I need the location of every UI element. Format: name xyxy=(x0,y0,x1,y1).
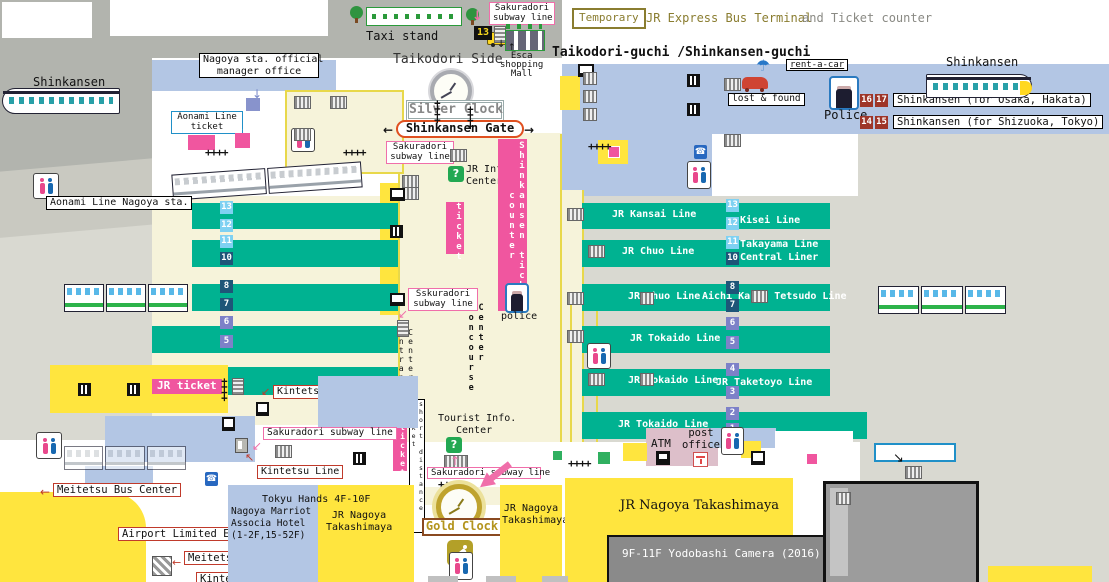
subway-entrance-icon xyxy=(152,556,172,576)
line-label: Kisei Line xyxy=(740,215,800,226)
escalator-icon xyxy=(567,208,584,221)
pink-arrow-down-icon: ↓ xyxy=(472,10,483,23)
kiosk-icon xyxy=(256,402,269,416)
kintetsu-mid-label: Kintetsu Line xyxy=(257,465,343,479)
commuter-train-icon xyxy=(878,286,1006,314)
restroom-icon xyxy=(36,432,62,459)
sakuradori-line1: Sakuradori xyxy=(495,3,549,13)
escalator-icon xyxy=(330,96,347,109)
platform-number: 13 xyxy=(220,201,233,214)
nagoya-station-map: JR Kansai Line Kisei Line JR Chuo Line T… xyxy=(0,0,1109,582)
sakuradori-line1: Sakuradori xyxy=(431,468,485,478)
atm-label: ATM xyxy=(651,438,671,451)
platform-number: 10 xyxy=(220,252,233,265)
ticket-gates-icon: ++++ xyxy=(218,378,231,401)
lost-found-label: lost & found xyxy=(728,93,805,106)
kiosk-icon xyxy=(751,451,765,465)
platform-number: 12 xyxy=(726,217,739,230)
takashimaya-b2: Takashimaya xyxy=(502,515,568,526)
escalator-icon xyxy=(724,134,741,147)
marriott-2: Associa Hotel xyxy=(231,518,305,529)
restroom-icon xyxy=(721,427,744,455)
takashimaya-a2: Takashimaya xyxy=(326,522,392,533)
takashimaya-a1: JR Nagoya xyxy=(332,510,386,521)
restaurant-icon xyxy=(687,103,700,116)
sskuradori-label: Sskuradori subway line xyxy=(408,288,478,311)
aonami-ticket-1: Aonami Line xyxy=(177,112,237,122)
escalator-icon xyxy=(275,445,292,458)
center-concourse-label: Center Concourse xyxy=(470,303,485,431)
escalator-icon xyxy=(450,149,467,162)
arrow-up-icon: ↑ xyxy=(508,44,516,53)
empty-label-box xyxy=(874,443,956,462)
arrow-right-icon: → xyxy=(524,124,534,136)
platform-number: 5 xyxy=(220,335,233,348)
line-label: JR Chuo Line xyxy=(628,291,700,302)
temporary-label: Temporary xyxy=(572,8,646,29)
escalator-icon xyxy=(588,373,605,386)
shinkansen-tokyo-label: Shinkansen (for Shizuoka, Tokyo) xyxy=(893,115,1103,129)
line-label: Central Liner xyxy=(740,252,818,263)
restaurant-icon xyxy=(353,452,366,465)
tree-icon xyxy=(350,6,363,19)
jr-ticket-label: JR ticket xyxy=(152,379,222,394)
pink-square xyxy=(806,453,818,465)
jr-info-2: Center xyxy=(466,176,502,187)
platform-number: 13 xyxy=(726,199,739,212)
shinkansen-train-icon xyxy=(926,74,1032,98)
bus-bay xyxy=(366,7,462,26)
taikodori-guchi-label: Taikodori-guchi /Shinkansen-guchi xyxy=(552,46,810,61)
escalator-icon xyxy=(640,373,654,386)
marriott-label: Nagoya Marriot Associa Hotel (1-2F,15-52… xyxy=(231,506,311,542)
escalator-icon xyxy=(583,90,597,103)
platform-number: 6 xyxy=(726,317,739,330)
gold-clock-label: Gold Clock xyxy=(422,518,502,536)
escalator-icon xyxy=(588,245,605,258)
gray-stub xyxy=(486,576,516,582)
platform-number: 8 xyxy=(726,281,739,294)
tourist-info-2: Center xyxy=(456,425,492,436)
platform-number: 8 xyxy=(220,280,233,293)
escalator-icon xyxy=(724,78,741,91)
escalator-icon xyxy=(397,320,409,337)
jr-express-bus-label: JR Express Bus Terminal xyxy=(646,12,812,26)
meitetsu-bus-label: Meitetsu Bus Center xyxy=(53,483,181,497)
platform-number: 4 xyxy=(726,363,739,376)
esca-label: Esca shopping Mall xyxy=(500,52,543,79)
tourist-info-label: Tourist Info. Center xyxy=(438,413,516,436)
sskuradori-2: subway line xyxy=(413,299,473,309)
train-outline-icon xyxy=(64,446,186,470)
building-block xyxy=(2,2,92,38)
escalator-icon xyxy=(640,292,654,305)
pink-arrow-up-icon: ↑ xyxy=(450,455,460,467)
phone-icon: ☎ xyxy=(694,145,707,159)
ticket-gates-icon: ++++ xyxy=(343,146,366,159)
queue-dots xyxy=(506,24,542,29)
post-office-icon xyxy=(693,452,708,467)
sakuradori-line1: Sakuradori xyxy=(267,427,324,438)
post-office-label: post office xyxy=(682,427,720,451)
platform-number: 12 xyxy=(220,219,233,232)
takashimaya-big-label: JR Nagoya Takashimaya xyxy=(620,499,779,514)
takashimaya-b-block xyxy=(500,485,562,582)
escalator-icon xyxy=(232,378,244,395)
sakuradori-line1: Sakuradori xyxy=(393,142,447,152)
restaurant-icon xyxy=(78,383,91,396)
gray-stub xyxy=(542,576,568,582)
platform-number: 2 xyxy=(726,407,739,420)
restroom-icon xyxy=(587,343,611,369)
platform-number: 3 xyxy=(726,386,739,399)
building-block xyxy=(110,0,328,36)
line-label: JR Tokaido Line xyxy=(630,333,720,344)
sakuradori-label-top: Sakuradori subway line xyxy=(489,2,555,25)
post-2: office xyxy=(682,439,720,451)
queue-dots xyxy=(372,14,456,19)
police-box-icon xyxy=(505,283,529,313)
red-arrow-icon: ← xyxy=(172,557,181,568)
esca-3: Mall xyxy=(511,69,533,79)
restaurant-icon xyxy=(390,225,403,238)
coffee-kiosk-icon xyxy=(222,417,235,431)
sakuradori-label-mid: Sakuradori subway line xyxy=(386,141,454,164)
takashimaya-b1: JR Nagoya xyxy=(504,503,558,514)
tourist-info-1: Tourist Info. xyxy=(438,413,516,424)
sakuradori-line2: subway line xyxy=(390,152,450,162)
manager-office-1: Nagoya sta. official xyxy=(203,54,323,65)
sskuradori-1: Sskuradori xyxy=(416,289,470,299)
red-arrow-left-icon: ← xyxy=(40,486,50,498)
blue-block-sw2 xyxy=(318,376,418,428)
pink-arrow-icon: ↙ xyxy=(398,308,408,320)
line-label: JR Chuo Line xyxy=(622,246,694,257)
line-label: Aichi Kanjo Tetsudo Line xyxy=(702,291,847,302)
platform-number: 7 xyxy=(220,298,233,311)
kiosk-icon xyxy=(390,293,405,306)
track-17-badge: 17 xyxy=(875,94,888,107)
tokyu-hands-label: Tokyu Hands 4F-10F xyxy=(262,494,370,506)
escalator-icon xyxy=(294,128,311,141)
red-arrow-icon: ↙ xyxy=(261,386,270,397)
ticket-office xyxy=(235,133,250,148)
escalator-icon xyxy=(583,72,597,85)
police-label: police xyxy=(501,311,537,323)
atm-icon xyxy=(656,451,670,465)
phone-icon: ☎ xyxy=(205,472,218,486)
silver-clock-label: Silver Clock xyxy=(406,100,504,121)
restaurant-icon xyxy=(687,74,700,87)
exit-marker xyxy=(598,452,610,464)
escalator-icon xyxy=(567,292,584,305)
commuter-train-icon xyxy=(64,284,188,312)
line-label: JR Kansai Line xyxy=(612,209,696,220)
shinkansen-gate-label: Shinkansen Gate xyxy=(396,120,524,138)
ticket-counter-label: and Ticket counter xyxy=(802,12,932,26)
platform-bar xyxy=(152,326,398,353)
platform-number: 6 xyxy=(220,316,233,329)
ticket-gates-icon: ++++ xyxy=(588,140,611,153)
car-icon xyxy=(742,77,768,89)
bus-stop-13-badge: 13 xyxy=(474,26,492,40)
info-icon: ? xyxy=(448,166,464,182)
rent-a-car-label: rent-a-car xyxy=(786,59,848,71)
takashimaya-b-label: JR Nagoya Takashimaya xyxy=(502,503,560,526)
marriott-3: (1-2F,15-52F) xyxy=(231,530,305,541)
ticket-gates-icon: ++++ xyxy=(205,146,228,159)
arrow-down-right-icon: ↘ xyxy=(893,452,904,465)
umbrella-icon: ☂ xyxy=(756,58,770,74)
escalator-icon xyxy=(294,96,311,109)
red-arrow-icon: ↖ xyxy=(245,452,254,463)
aonami-ticket-label: Aonami Line ticket xyxy=(171,111,243,134)
marriott-1: Nagoya Marriot xyxy=(231,506,311,517)
escalator-icon xyxy=(583,108,597,121)
office-marker xyxy=(246,98,260,111)
taxi-stand-label: Taxi stand xyxy=(366,30,438,44)
exit-marker xyxy=(553,451,562,460)
aonami-station-label: Aonami Line Nagoya sta. xyxy=(46,196,192,210)
shinkansen-train-icon xyxy=(2,88,120,114)
info-icon: ? xyxy=(446,437,462,453)
post-1: post xyxy=(688,427,713,439)
restaurant-icon xyxy=(127,383,140,396)
platform-number: 7 xyxy=(726,299,739,312)
sakuradori-line2: subway line xyxy=(493,13,553,23)
gray-stub xyxy=(428,576,458,582)
escalator-icon xyxy=(905,466,922,479)
manager-office-label: Nagoya sta. official manager office xyxy=(199,53,319,78)
white-box-on-platform xyxy=(775,431,853,448)
track-16-badge: 16 xyxy=(860,94,873,107)
arrow-left-icon: ← xyxy=(383,124,393,136)
shinkansen-east-label: Shinkansen xyxy=(946,56,1018,70)
sakuradori-line2: subway line xyxy=(330,427,393,438)
yellow-s1 xyxy=(623,443,647,461)
right-platform-area xyxy=(562,196,858,444)
concourse-edge xyxy=(560,134,562,464)
line-label: Takayama Line xyxy=(740,239,818,250)
platform-number: 11 xyxy=(220,235,233,248)
manager-office-2: manager office xyxy=(217,66,301,77)
taikodori-side-label: Taikodori Side xyxy=(393,53,503,68)
sakuradori-label-west: Sakuradori subway line xyxy=(263,427,397,440)
platform-number: 10 xyxy=(726,252,739,265)
ticket-office-vertical: ticket xyxy=(446,202,464,254)
kiosk-icon xyxy=(390,188,405,201)
ticket-gates-icon: ++++ xyxy=(568,457,591,470)
ticket-white-label: ticket xyxy=(236,122,272,134)
ticket-gates-icon: ++++ xyxy=(431,100,444,123)
restroom-icon xyxy=(687,161,711,189)
police-box-icon xyxy=(829,76,859,110)
escalator-icon xyxy=(567,330,584,343)
ticket-gates-icon: ++++ xyxy=(464,106,477,129)
yodobashi-label: 9F-11F Yodobashi Camera (2016) xyxy=(622,548,821,561)
aonami-ticket-2: ticket xyxy=(191,122,224,132)
yellow-nw xyxy=(560,76,580,110)
right-end-corridor xyxy=(562,190,584,462)
platform-number: 11 xyxy=(726,236,739,249)
track-15-badge: 15 xyxy=(875,116,888,129)
yellow-se-strip xyxy=(988,566,1092,582)
track-14-badge: 14 xyxy=(860,116,873,129)
takashimaya-a-label: JR Nagoya Takashimaya xyxy=(326,510,392,533)
platform-number: 5 xyxy=(726,336,739,349)
escalator-icon xyxy=(751,290,768,303)
escalator-icon xyxy=(836,492,851,505)
